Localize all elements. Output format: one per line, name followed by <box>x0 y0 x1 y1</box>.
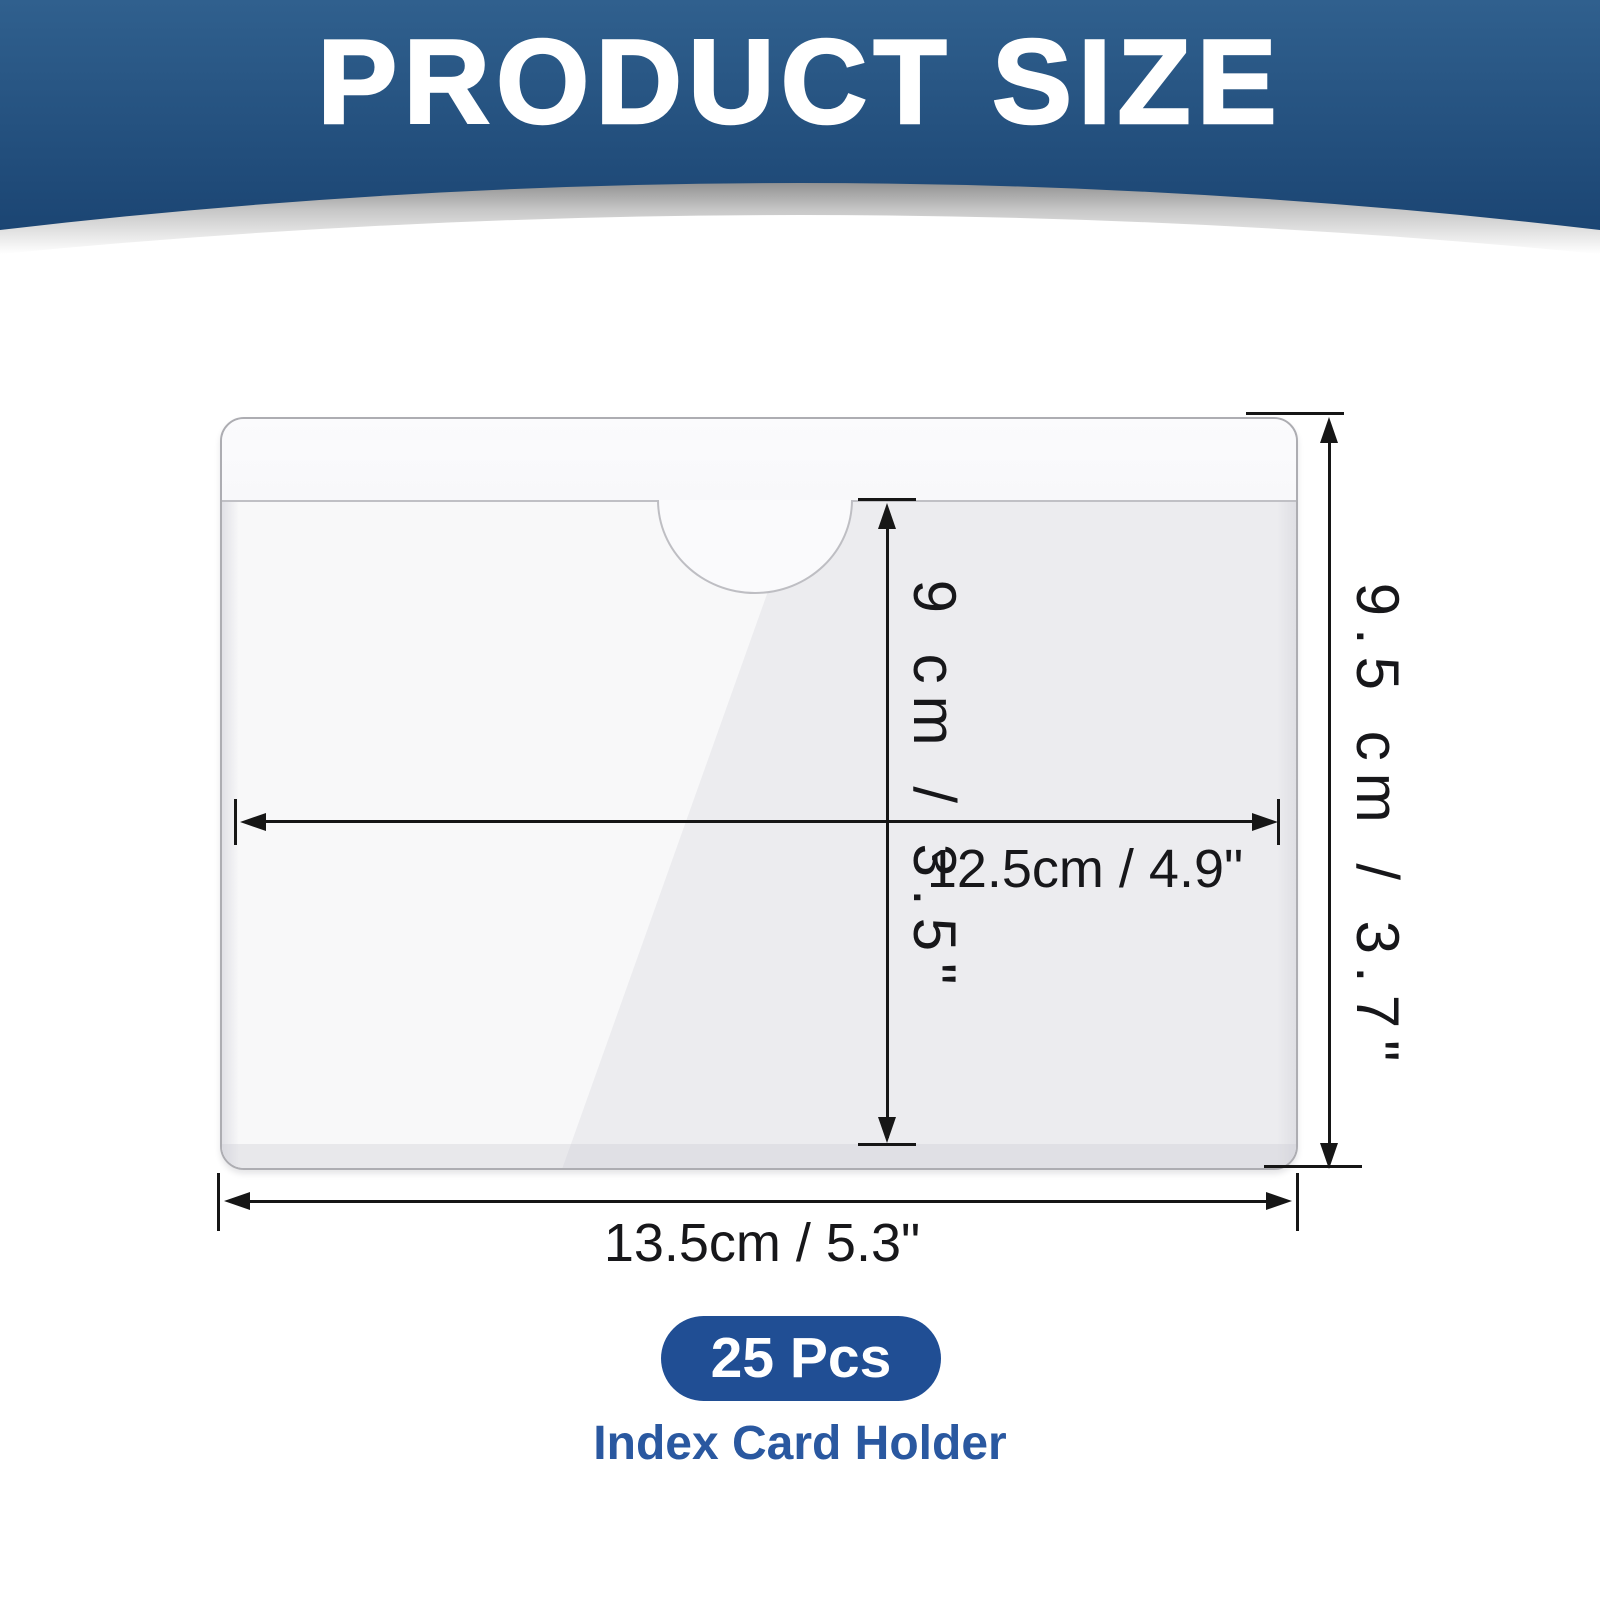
product-size-infographic: PRODUCT SIZE 9 cm / 3.5" 9.5 cm / 3.7" <box>0 0 1600 1600</box>
dim-pocket-width-line <box>250 820 1270 823</box>
dim-tick <box>234 799 237 845</box>
dim-overall-height-label: 9.5 cm / 3.7" <box>1341 538 1413 1118</box>
product-name-label: Index Card Holder <box>400 1416 1200 1472</box>
dim-pocket-width-label: 12.5cm / 4.9" <box>785 838 1385 900</box>
dim-pocket-height-line <box>886 510 889 1138</box>
arrowhead-down-icon <box>878 1117 896 1143</box>
pocket-glossy-sheen <box>222 502 1296 1168</box>
card-pocket <box>222 500 1296 1168</box>
index-card-holder-graphic <box>220 417 1298 1170</box>
arrowhead-left-icon <box>240 813 266 831</box>
dim-overall-width-line <box>234 1200 1284 1203</box>
dim-overall-height-line <box>1328 424 1331 1162</box>
dim-tick <box>1296 1173 1299 1231</box>
dim-tick <box>858 1143 916 1146</box>
dim-pocket-height-label: 9 cm / 3.5" <box>898 528 970 1048</box>
pocket-bottom-edge <box>222 1144 1296 1168</box>
arrowhead-right-icon <box>1252 813 1278 831</box>
dim-overall-width-label: 13.5cm / 5.3" <box>462 1212 1062 1274</box>
arrowhead-left-icon <box>224 1192 250 1210</box>
quantity-badge-label: 25 Pcs <box>711 1326 892 1390</box>
header-banner: PRODUCT SIZE <box>0 0 1600 260</box>
dim-tick <box>217 1173 220 1231</box>
dim-tick <box>858 498 916 501</box>
page-title: PRODUCT SIZE <box>0 22 1600 142</box>
dim-tick <box>1246 412 1344 415</box>
dim-tick <box>1264 1165 1362 1168</box>
arrowhead-up-icon <box>878 503 896 529</box>
card-top-flap <box>222 419 1296 500</box>
quantity-badge: 25 Pcs <box>661 1316 941 1401</box>
arrowhead-right-icon <box>1266 1192 1292 1210</box>
arrowhead-up-icon <box>1320 417 1338 443</box>
